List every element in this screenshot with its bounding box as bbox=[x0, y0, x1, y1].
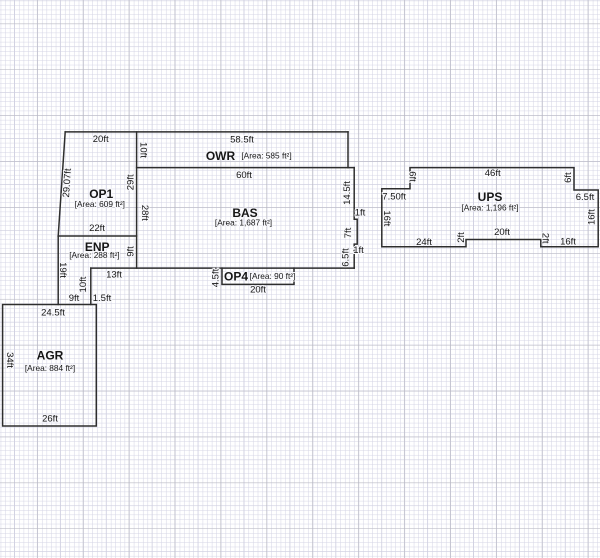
svg-text:1ft: 1ft bbox=[353, 245, 364, 256]
svg-text:6ft: 6ft bbox=[406, 171, 417, 182]
svg-text:20ft: 20ft bbox=[494, 227, 510, 238]
svg-text:OP4: OP4 bbox=[224, 269, 248, 283]
svg-text:9ft: 9ft bbox=[126, 246, 137, 257]
svg-text:46ft: 46ft bbox=[485, 168, 501, 179]
svg-text:OWR: OWR bbox=[206, 149, 236, 163]
svg-text:60ft: 60ft bbox=[236, 170, 252, 181]
svg-text:7.50ft: 7.50ft bbox=[382, 192, 406, 203]
svg-text:[Area: 609 ft²]: [Area: 609 ft²] bbox=[75, 199, 125, 209]
svg-text:24.5ft: 24.5ft bbox=[41, 307, 65, 318]
svg-text:6.5ft: 6.5ft bbox=[341, 248, 352, 267]
svg-text:7ft: 7ft bbox=[343, 227, 354, 238]
svg-text:[Area: 585 ft²]: [Area: 585 ft²] bbox=[241, 151, 291, 161]
svg-text:4.5ft: 4.5ft bbox=[211, 268, 222, 287]
svg-text:[Area: 90 ft²]: [Area: 90 ft²] bbox=[250, 271, 296, 281]
svg-text:1ft: 1ft bbox=[355, 208, 366, 219]
svg-text:9ft: 9ft bbox=[69, 293, 80, 304]
svg-text:AGR: AGR bbox=[37, 349, 64, 363]
svg-text:24ft: 24ft bbox=[416, 237, 432, 248]
svg-text:34ft: 34ft bbox=[4, 352, 15, 368]
svg-text:[Area: 884 ft²]: [Area: 884 ft²] bbox=[25, 363, 75, 373]
svg-text:29.07ft: 29.07ft bbox=[61, 168, 74, 198]
svg-text:20ft: 20ft bbox=[93, 134, 109, 145]
svg-text:2ft: 2ft bbox=[456, 232, 467, 243]
svg-text:16ft: 16ft bbox=[586, 209, 597, 225]
svg-text:20ft: 20ft bbox=[250, 285, 266, 296]
svg-text:[Area: 288 ft²]: [Area: 288 ft²] bbox=[69, 250, 119, 260]
svg-text:[Area: 1,196 ft²]: [Area: 1,196 ft²] bbox=[461, 203, 518, 213]
svg-text:16ft: 16ft bbox=[381, 210, 392, 226]
svg-text:16ft: 16ft bbox=[560, 236, 576, 247]
svg-text:10ft: 10ft bbox=[137, 142, 148, 158]
svg-text:22ft: 22ft bbox=[89, 223, 105, 234]
svg-text:1.5ft: 1.5ft bbox=[93, 293, 112, 304]
svg-text:[Area: 1,687 ft²]: [Area: 1,687 ft²] bbox=[215, 217, 272, 227]
svg-text:19ft: 19ft bbox=[57, 262, 68, 278]
svg-text:10ft: 10ft bbox=[78, 276, 89, 292]
svg-text:2ft: 2ft bbox=[540, 233, 551, 244]
svg-text:26ft: 26ft bbox=[42, 414, 58, 425]
svg-text:29ft: 29ft bbox=[126, 174, 137, 190]
svg-text:28ft: 28ft bbox=[139, 205, 150, 221]
svg-text:13ft: 13ft bbox=[106, 269, 122, 280]
svg-text:58.5ft: 58.5ft bbox=[230, 134, 254, 145]
svg-text:6.5ft: 6.5ft bbox=[576, 192, 595, 203]
svg-text:14.5ft: 14.5ft bbox=[342, 181, 353, 205]
svg-text:6ft: 6ft bbox=[563, 172, 574, 183]
